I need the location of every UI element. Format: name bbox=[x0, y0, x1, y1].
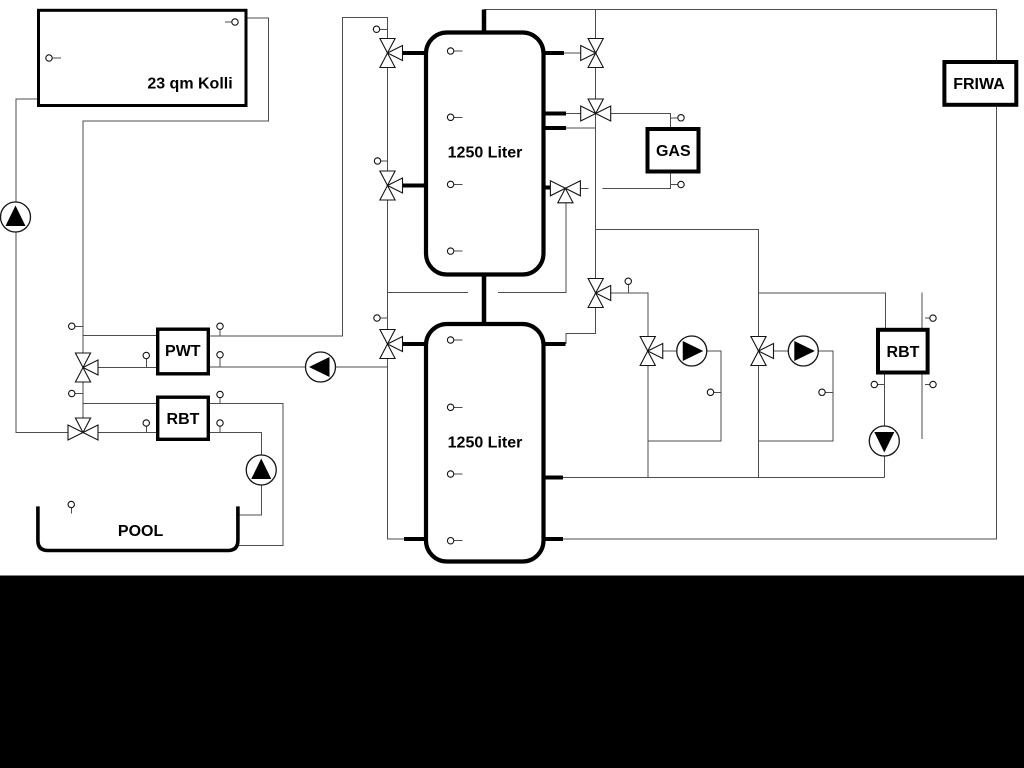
svg-text:23 qm Kolli: 23 qm Kolli bbox=[147, 76, 232, 93]
svg-text:POOL: POOL bbox=[118, 523, 164, 540]
svg-text:1250 Liter: 1250 Liter bbox=[448, 144, 523, 161]
svg-text:PWT: PWT bbox=[165, 343, 201, 360]
svg-text:FRIWA: FRIWA bbox=[953, 76, 1005, 93]
svg-text:GAS: GAS bbox=[656, 143, 691, 160]
svg-text:1250 Liter: 1250 Liter bbox=[448, 434, 523, 451]
svg-text:RBT: RBT bbox=[167, 411, 200, 428]
svg-text:RBT: RBT bbox=[887, 344, 920, 361]
